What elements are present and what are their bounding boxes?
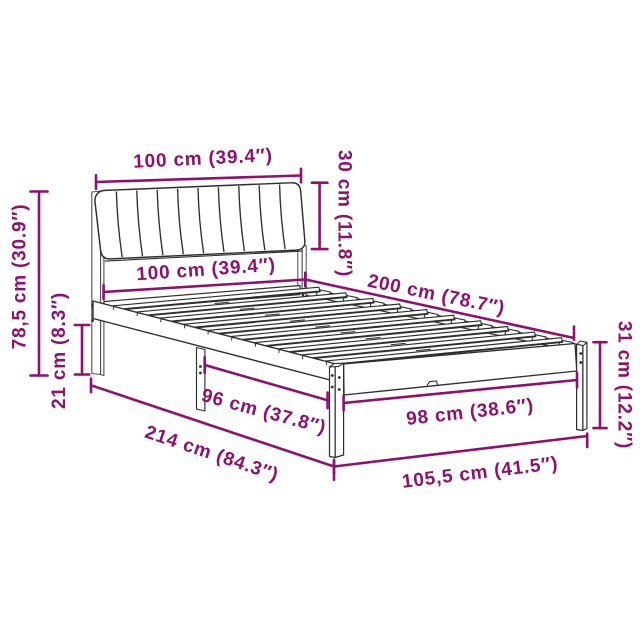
svg-text:31 cm (12.2″): 31 cm (12.2″)	[614, 321, 635, 449]
svg-text:30 cm (11.8″): 30 cm (11.8″)	[333, 150, 354, 277]
svg-text:21 cm (8.3″): 21 cm (8.3″)	[49, 292, 70, 409]
svg-text:78,5 cm (30.9″): 78,5 cm (30.9″)	[10, 204, 31, 350]
